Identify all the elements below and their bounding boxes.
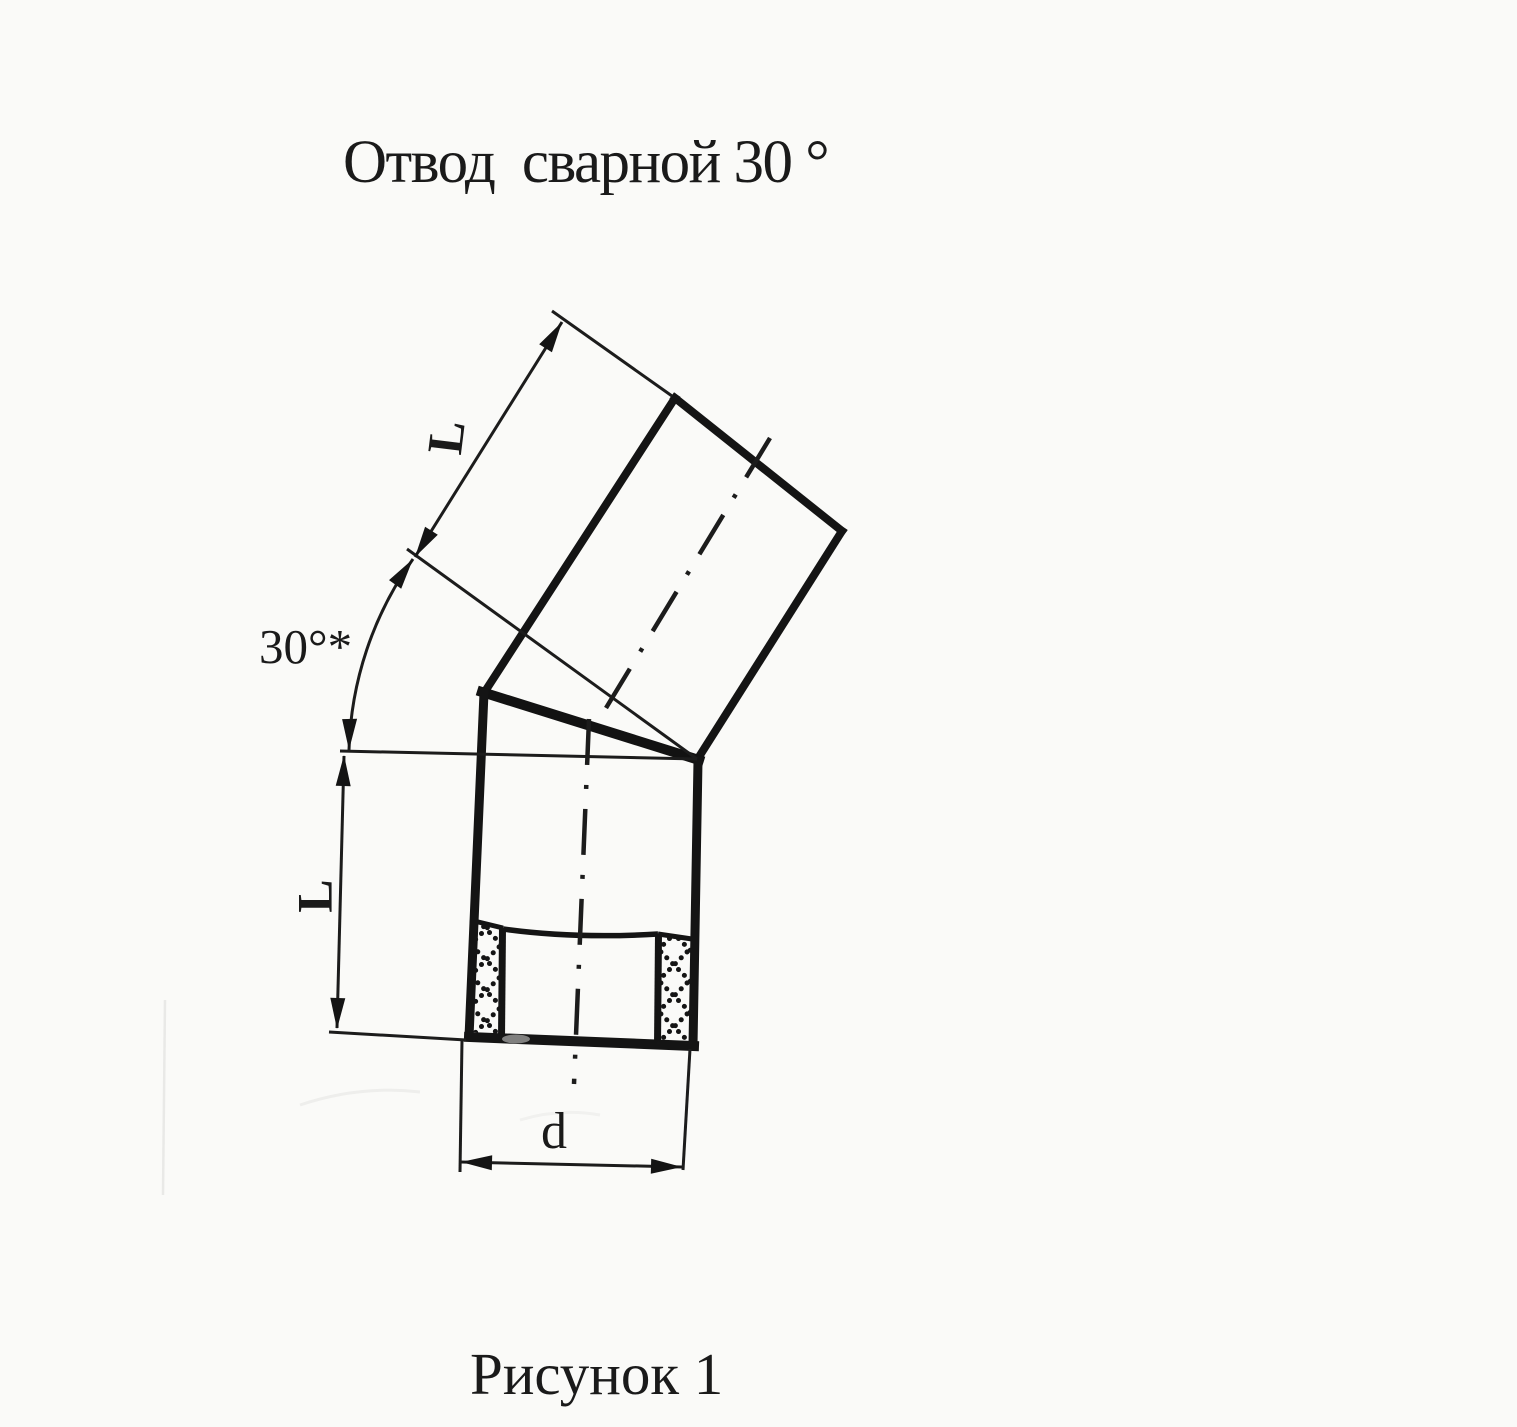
- svg-text:L: L: [286, 879, 342, 912]
- svg-text:Отвод сварной 30 °: Отвод сварной 30 °: [343, 129, 828, 196]
- svg-text:L: L: [416, 417, 476, 457]
- svg-text:Рисунок 1: Рисунок 1: [470, 1341, 723, 1407]
- svg-text:30°*: 30°*: [259, 619, 352, 674]
- svg-text:d: d: [541, 1103, 567, 1160]
